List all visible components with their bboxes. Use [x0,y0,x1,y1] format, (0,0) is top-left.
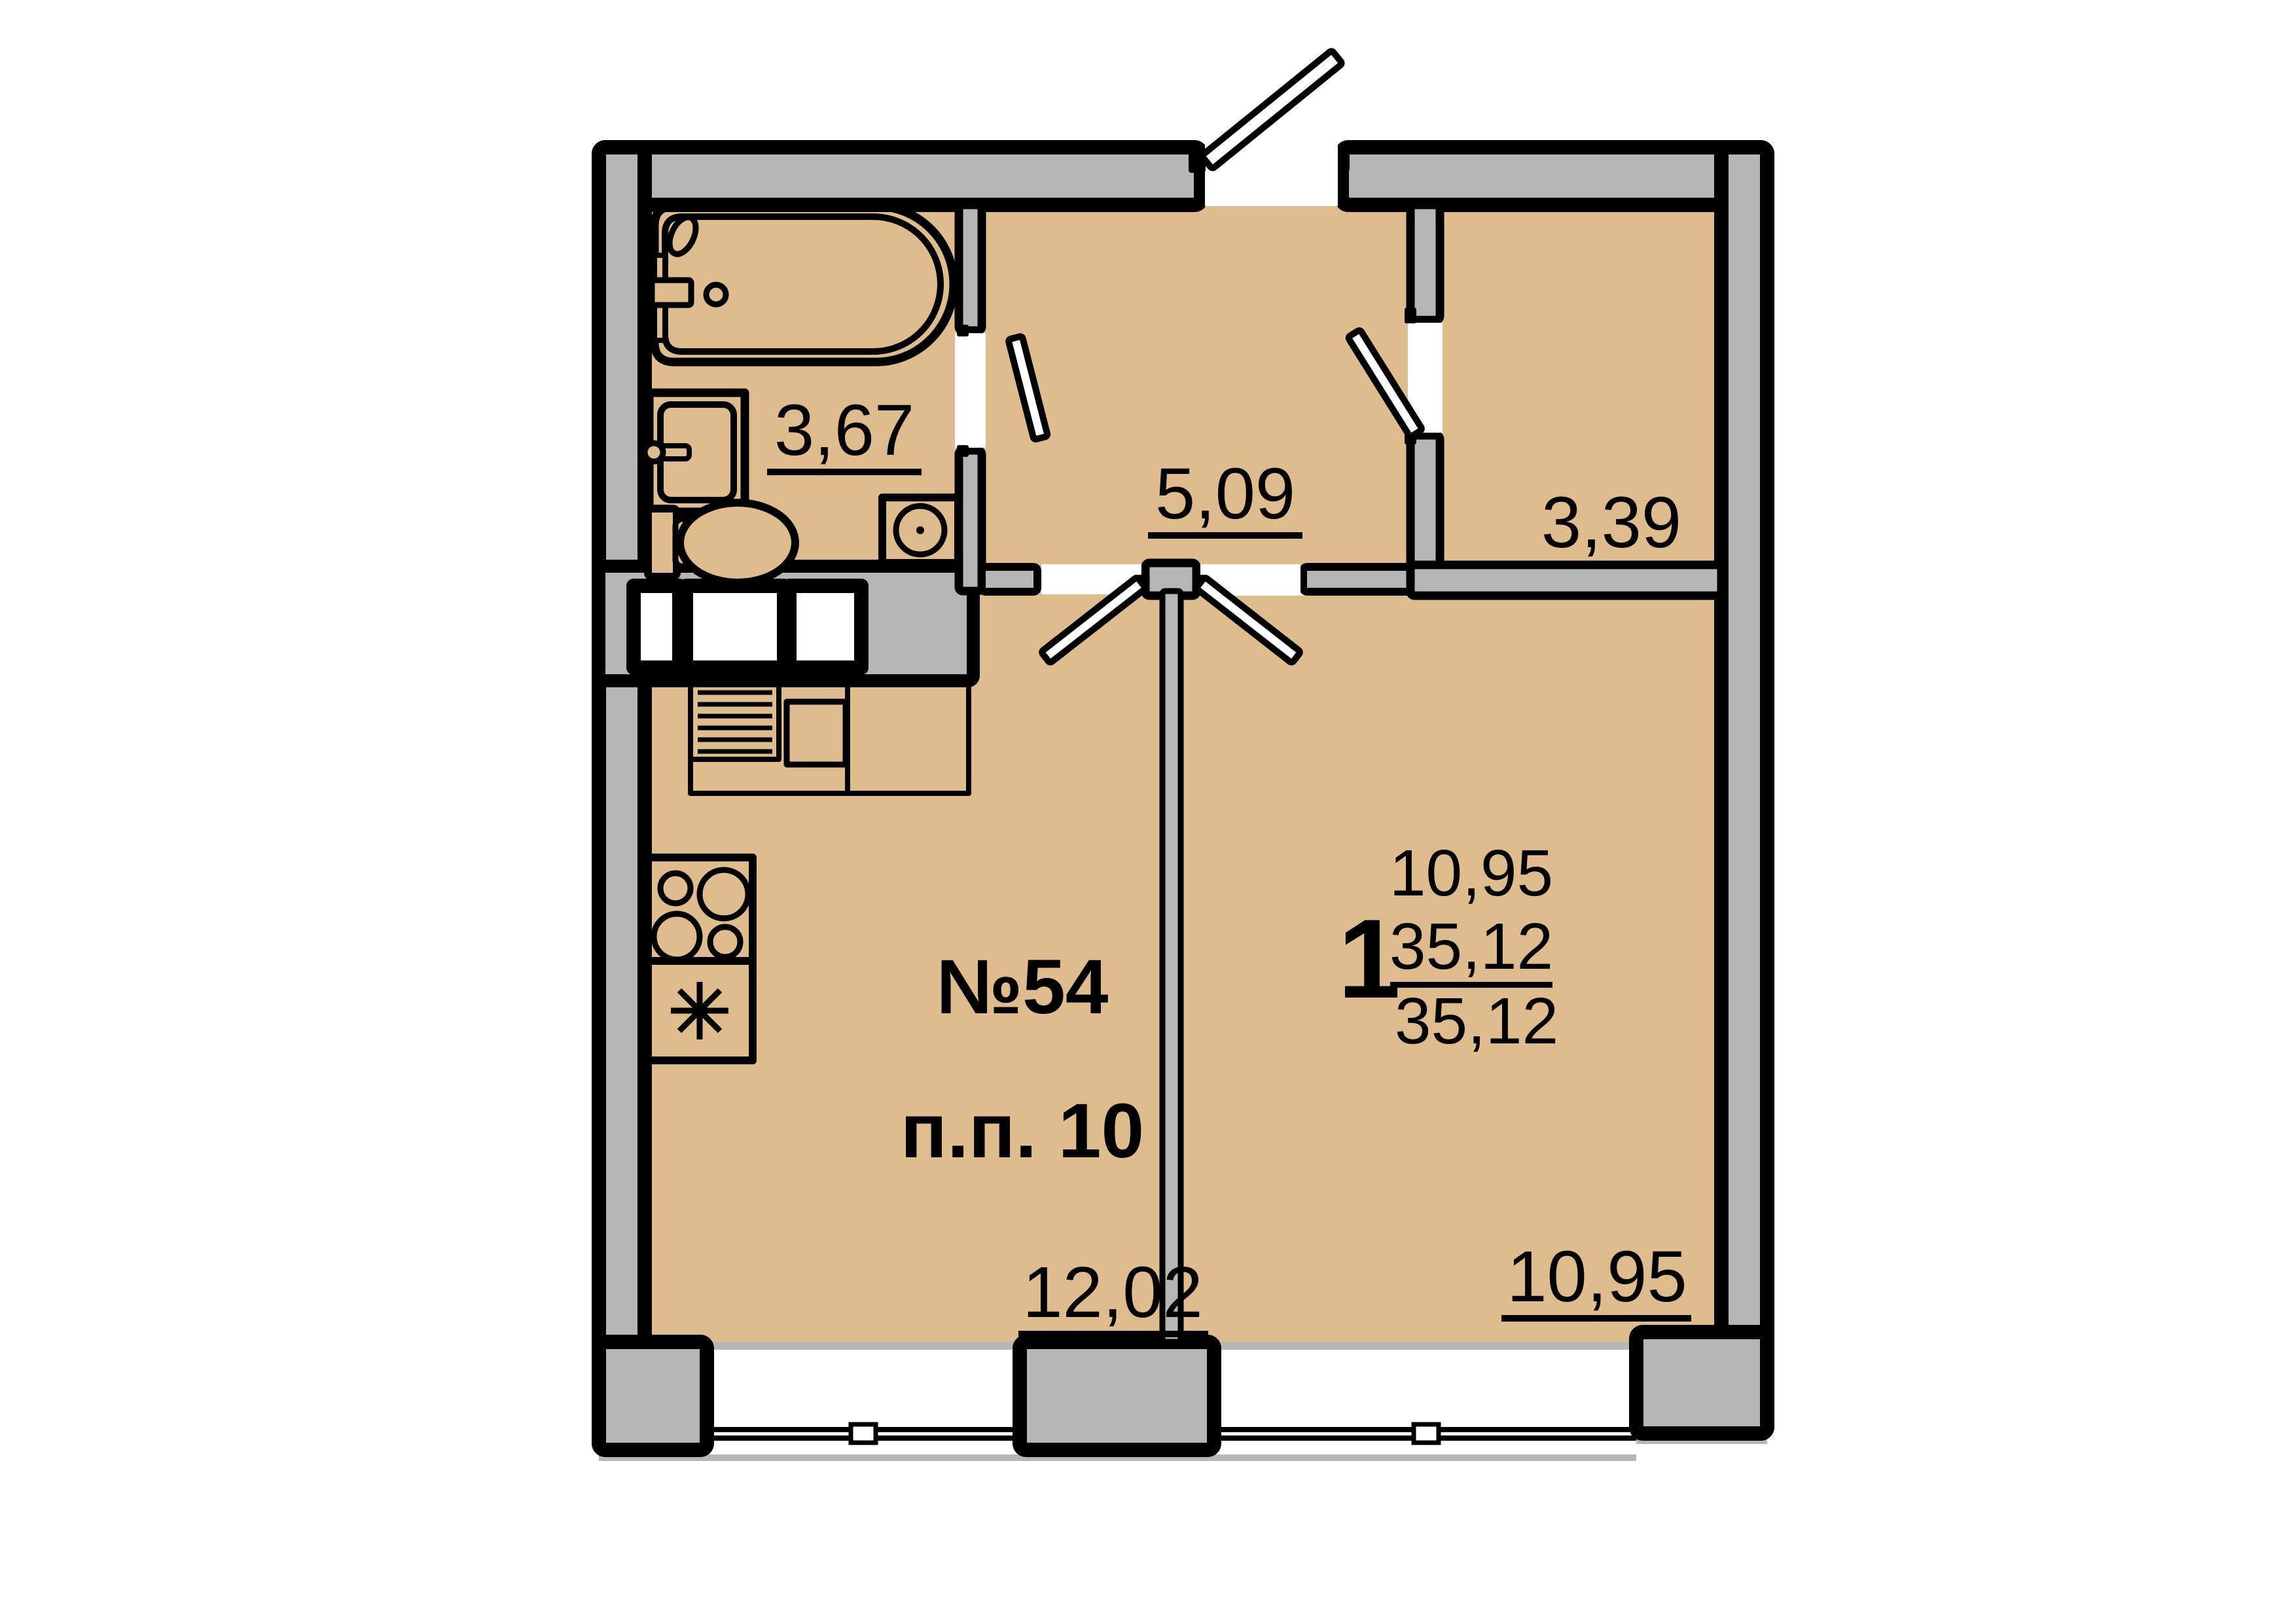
wall-hall-stub-right [1303,567,1410,592]
total-area-value: 35,12 [1390,910,1553,983]
vent-shaft-2 [686,586,784,668]
storage-area-underline [1534,561,1689,568]
vent-shafts [634,586,861,668]
living-room-window [1214,1424,1636,1443]
vent-shaft-3 [789,586,861,668]
living-area-value: 10,95 [1390,837,1553,910]
bathroom-door-opening [955,333,986,448]
living-room-area-underline [1501,1315,1691,1322]
total-area-value-2: 35,12 [1395,984,1558,1058]
wall-top-right [1342,147,1767,205]
storage-area-label: 3,39 [1541,482,1681,563]
slab-edge-room-window [1214,1342,1636,1350]
wall-left [599,147,645,1450]
storage-door-upper-nub [1405,308,1416,323]
pier-bottom-left [599,1342,707,1450]
kitchen-area-underline [1018,1331,1208,1337]
floor-plan-page: 3,67 5,09 3,39 12,02 10,95 №54 п.п. 10 1… [0,0,2296,1624]
vent-shaft-1 [634,586,679,668]
living-room-area-label: 10,95 [1507,1236,1687,1317]
wall-storage-left-upper [1410,205,1440,320]
kitchen-area-label: 12,02 [1022,1252,1202,1333]
wall-hall-stub-left [982,567,1037,592]
bathroom-door-lower-nub [957,445,969,457]
wall-right [1721,147,1767,1434]
apartment-position-label: п.п. 10 [901,1088,1144,1174]
apartment-number-label: №54 [937,944,1109,1030]
fridge-star [671,982,728,1039]
washing-machine-icon [882,497,958,563]
entrance-jamb-nub [1338,152,1350,171]
hallway-area-underline [1148,532,1302,539]
bathroom-area-underline [767,469,922,475]
wall-top-left [599,147,1201,205]
hallway-area-label: 5,09 [1155,454,1295,534]
bathroom-door-hinge-nub [957,325,969,336]
toilet-icon [648,503,795,583]
wall-storage-bottom [1410,565,1721,596]
wall-divider-kitchen-room [1162,591,1181,1342]
kitchen-window [707,1424,1020,1443]
floor-plan: 3,67 5,09 3,39 12,02 10,95 №54 п.п. 10 1… [0,0,2296,1624]
sink-icon [645,393,745,512]
pier-bottom-center [1020,1342,1214,1450]
slab-edge-kitchen-window [707,1342,1020,1350]
block-bottom-right [1636,1332,1767,1434]
wall-bathroom-right-upper [959,205,982,331]
bathroom-area-label: 3,67 [774,390,914,471]
